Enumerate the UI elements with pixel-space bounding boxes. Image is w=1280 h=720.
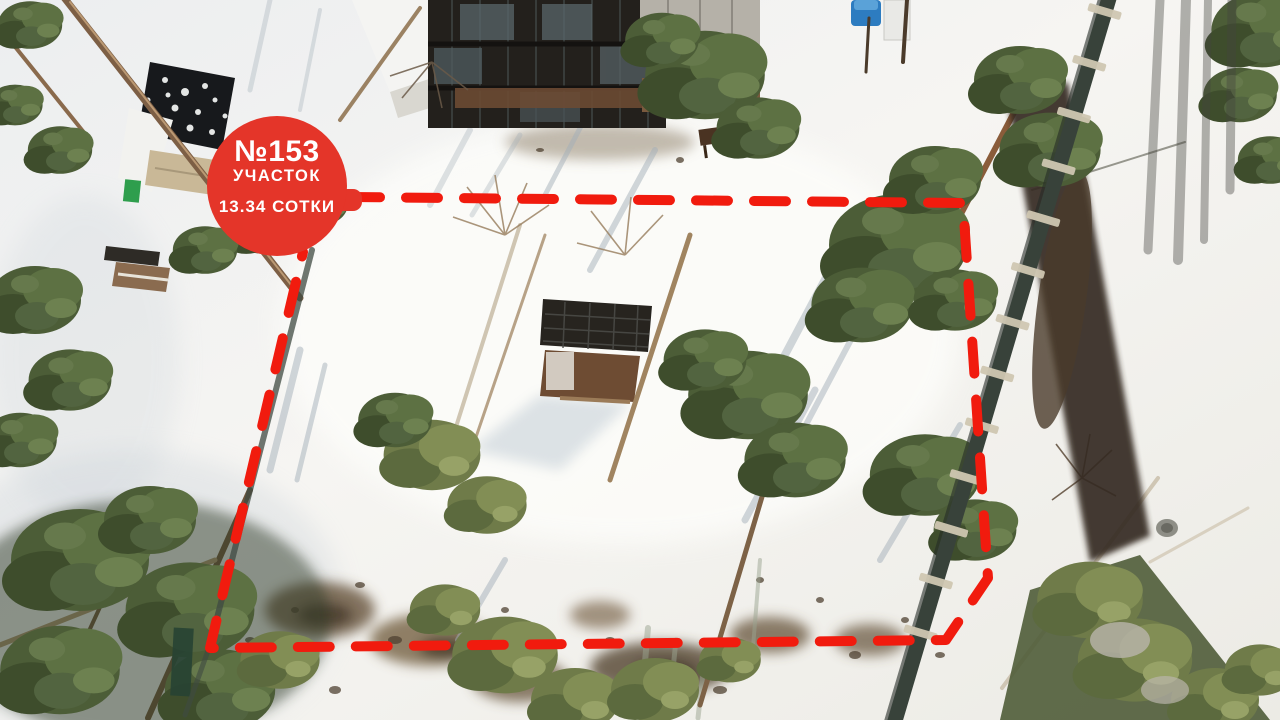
green-container bbox=[123, 179, 141, 203]
badge-area-label: 13.34 СОТКИ bbox=[219, 197, 335, 216]
green-fence-piece bbox=[170, 628, 194, 697]
tank-highlight bbox=[854, 0, 878, 10]
barrel bbox=[1156, 519, 1178, 537]
scene-canvas: №153 УЧАСТОК 13.34 СОТКИ bbox=[0, 0, 1280, 720]
aerial-plot-photo: №153 УЧАСТОК 13.34 СОТКИ bbox=[0, 0, 1280, 720]
badge-plot-label: УЧАСТОК bbox=[233, 167, 321, 185]
badge-plot-number: №153 bbox=[234, 135, 320, 168]
